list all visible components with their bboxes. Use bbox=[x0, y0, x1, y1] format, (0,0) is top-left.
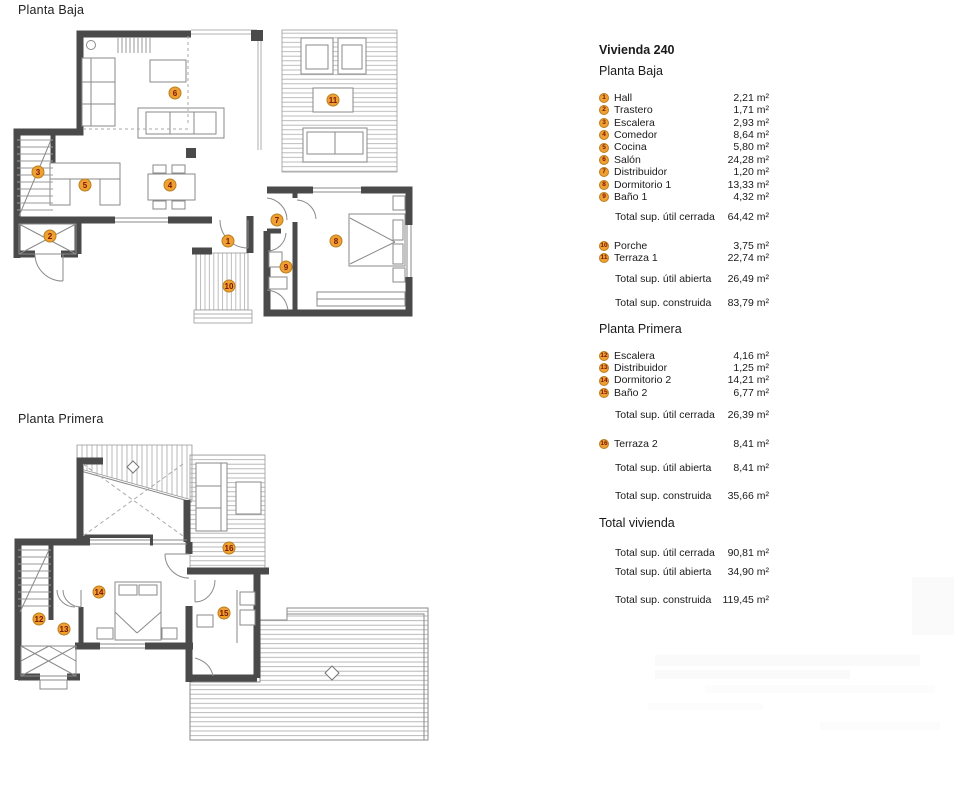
svg-text:8: 8 bbox=[334, 237, 339, 246]
room-area: 1,71 m² bbox=[733, 104, 769, 116]
badge-bano-2: 15 bbox=[218, 607, 230, 619]
room-label: Escalera bbox=[614, 117, 733, 129]
room-area: 13,33 m² bbox=[728, 179, 769, 191]
total-row: Total sup. construida83,79 m² bbox=[599, 297, 769, 309]
sloped-roof-hatch bbox=[77, 445, 192, 502]
room-area: 5,80 m² bbox=[733, 141, 769, 153]
room-number-badge: 6 bbox=[599, 155, 609, 165]
total-label: Total sup. útil cerrada bbox=[599, 211, 728, 223]
badge-hall: 1 bbox=[222, 235, 234, 247]
room-area: 8,64 m² bbox=[733, 129, 769, 141]
room-area: 2,93 m² bbox=[733, 117, 769, 129]
roof-overhang bbox=[191, 30, 263, 41]
room-area: 6,77 m² bbox=[733, 387, 769, 399]
total-label: Total sup. útil abierta bbox=[599, 462, 733, 474]
legend-heading-total-vivienda: Total vivienda bbox=[599, 517, 769, 529]
badge-terraza-1: 11 bbox=[327, 94, 339, 106]
total-row: Total sup. útil abierta34,90 m² bbox=[599, 566, 769, 578]
svg-text:9: 9 bbox=[284, 263, 289, 272]
total-row: Total sup. útil cerrada64,42 m² bbox=[599, 211, 769, 223]
svg-text:2: 2 bbox=[48, 232, 53, 241]
legend-title: Vivienda 240 bbox=[599, 44, 769, 56]
total-label: Total sup. construida bbox=[599, 490, 728, 502]
room-label: Hall bbox=[614, 92, 733, 104]
svg-text:3: 3 bbox=[36, 168, 41, 177]
total-row: Total sup. útil cerrada26,39 m² bbox=[599, 409, 769, 421]
room-number-badge: 4 bbox=[599, 130, 609, 140]
planta-baja-title: Planta Baja bbox=[18, 3, 84, 17]
svg-text:7: 7 bbox=[275, 216, 280, 225]
total-value: 83,79 m² bbox=[728, 297, 769, 309]
room-number-badge: 13 bbox=[599, 363, 609, 373]
badge-porche: 10 bbox=[223, 280, 235, 292]
svg-text:14: 14 bbox=[95, 588, 104, 597]
room-label: Baño 2 bbox=[614, 387, 733, 399]
faint-artifact bbox=[820, 722, 940, 730]
legend-row: 2Trastero1,71 m² bbox=[599, 104, 769, 116]
legend-row: 8Dormitorio 113,33 m² bbox=[599, 179, 769, 191]
svg-text:4: 4 bbox=[168, 181, 173, 190]
legend-row: 10Porche3,75 m² bbox=[599, 240, 769, 252]
legend-row: 5Cocina5,80 m² bbox=[599, 141, 769, 153]
total-value: 35,66 m² bbox=[728, 490, 769, 502]
room-area: 2,21 m² bbox=[733, 92, 769, 104]
floorplan-document: { "plans": { "baja_title": "Planta Baja"… bbox=[0, 0, 958, 800]
legend-row: 12Escalera4,16 m² bbox=[599, 350, 769, 362]
room-label: Terraza 1 bbox=[614, 252, 728, 264]
svg-text:12: 12 bbox=[35, 615, 44, 624]
badge-escalera-2: 12 bbox=[33, 613, 45, 625]
room-label: Dormitorio 2 bbox=[614, 374, 728, 386]
svg-text:13: 13 bbox=[60, 625, 69, 634]
total-value: 90,81 m² bbox=[728, 547, 769, 559]
room-label: Escalera bbox=[614, 350, 733, 362]
room-label: Baño 1 bbox=[614, 191, 733, 203]
svg-text:1: 1 bbox=[226, 237, 231, 246]
room-area: 3,75 m² bbox=[733, 240, 769, 252]
legend-heading-planta-baja: Planta Baja bbox=[599, 65, 769, 77]
room-number-badge: 12 bbox=[599, 351, 609, 361]
room-area: 8,41 m² bbox=[733, 438, 769, 450]
svg-text:6: 6 bbox=[173, 89, 178, 98]
windows bbox=[40, 538, 187, 689]
total-value: 34,90 m² bbox=[728, 566, 769, 578]
legend-row: 1Hall2,21 m² bbox=[599, 92, 769, 104]
svg-text:16: 16 bbox=[225, 544, 234, 553]
room-label: Distribuidor bbox=[614, 362, 733, 374]
total-label: Total sup. útil abierta bbox=[599, 273, 728, 285]
room-number-badge: 8 bbox=[599, 180, 609, 190]
svg-text:10: 10 bbox=[225, 282, 234, 291]
svg-text:11: 11 bbox=[329, 96, 338, 105]
legend-row: 15Baño 26,77 m² bbox=[599, 387, 769, 399]
faint-artifact bbox=[655, 655, 920, 666]
lower-roof-hatch bbox=[190, 608, 428, 740]
legend-row: 3Escalera2,93 m² bbox=[599, 117, 769, 129]
faint-artifact bbox=[655, 670, 850, 679]
badge-distribuidor-1: 7 bbox=[271, 214, 283, 226]
total-row: Total sup. útil cerrada90,81 m² bbox=[599, 547, 769, 559]
room-area: 4,32 m² bbox=[733, 191, 769, 203]
room-label: Terraza 2 bbox=[614, 438, 733, 450]
area-legend: Vivienda 240 Planta Baja 1Hall2,21 m² 2T… bbox=[599, 44, 769, 606]
room-area: 24,28 m² bbox=[728, 154, 769, 166]
badge-cocina: 5 bbox=[79, 179, 91, 191]
total-row: Total sup. útil abierta8,41 m² bbox=[599, 462, 769, 474]
badge-distribuidor-2: 13 bbox=[58, 623, 70, 635]
room-number-badge: 11 bbox=[599, 253, 609, 263]
room-number-badge: 9 bbox=[599, 192, 609, 202]
legend-row: 14Dormitorio 214,21 m² bbox=[599, 374, 769, 386]
faint-artifact bbox=[648, 703, 763, 710]
total-value: 64,42 m² bbox=[728, 211, 769, 223]
total-label: Total sup. útil cerrada bbox=[599, 409, 728, 421]
total-row: Total sup. útil abierta26,49 m² bbox=[599, 273, 769, 285]
total-value: 119,45 m² bbox=[723, 594, 770, 606]
room-number-badge: 1 bbox=[599, 93, 609, 103]
floorplan-planta-primera: 12 13 14 15 16 bbox=[5, 430, 455, 750]
legend-row: 9Baño 14,32 m² bbox=[599, 191, 769, 203]
room-number-badge: 16 bbox=[599, 439, 609, 449]
legend-row: 7Distribuidor1,20 m² bbox=[599, 166, 769, 178]
svg-text:5: 5 bbox=[83, 181, 88, 190]
room-number-badge: 14 bbox=[599, 376, 609, 386]
room-number-badge: 10 bbox=[599, 241, 609, 251]
room-area: 22,74 m² bbox=[728, 252, 769, 264]
badge-bano-1: 9 bbox=[280, 261, 292, 273]
room-number-badge: 7 bbox=[599, 167, 609, 177]
room-label: Distribuidor bbox=[614, 166, 733, 178]
room-label: Salón bbox=[614, 154, 728, 166]
room-area: 4,16 m² bbox=[733, 350, 769, 362]
room-area: 1,20 m² bbox=[733, 166, 769, 178]
planta-primera-title: Planta Primera bbox=[18, 412, 103, 426]
legend-row: 16Terraza 28,41 m² bbox=[599, 438, 769, 450]
room-number-badge: 15 bbox=[599, 388, 609, 398]
legend-row: 6Salón24,28 m² bbox=[599, 154, 769, 166]
floorplan-planta-baja: 1 2 3 4 5 6 7 8 9 10 11 bbox=[5, 22, 455, 342]
badge-comedor: 4 bbox=[164, 179, 176, 191]
legend-row: 11Terraza 122,74 m² bbox=[599, 252, 769, 264]
total-value: 8,41 m² bbox=[733, 462, 769, 474]
total-label: Total sup. útil abierta bbox=[599, 566, 728, 578]
faint-artifact bbox=[705, 685, 935, 693]
badge-trastero: 2 bbox=[44, 230, 56, 242]
total-row: Total sup. construida119,45 m² bbox=[599, 594, 769, 606]
badge-terraza-2: 16 bbox=[223, 542, 235, 554]
room-number-badge: 3 bbox=[599, 118, 609, 128]
badge-dormitorio-2: 14 bbox=[93, 586, 105, 598]
room-label: Dormitorio 1 bbox=[614, 179, 728, 191]
total-label: Total sup. útil cerrada bbox=[599, 547, 728, 559]
room-label: Comedor bbox=[614, 129, 733, 141]
total-value: 26,49 m² bbox=[728, 273, 769, 285]
legend-heading-planta-primera: Planta Primera bbox=[599, 323, 769, 335]
legend-row: 4Comedor8,64 m² bbox=[599, 129, 769, 141]
total-row: Total sup. construida35,66 m² bbox=[599, 490, 769, 502]
total-label: Total sup. construida bbox=[599, 594, 723, 606]
room-label: Trastero bbox=[614, 104, 733, 116]
room-area: 1,25 m² bbox=[733, 362, 769, 374]
faint-artifact bbox=[912, 577, 954, 635]
room-number-badge: 2 bbox=[599, 105, 609, 115]
room-label: Porche bbox=[614, 240, 733, 252]
badge-salon: 6 bbox=[169, 87, 181, 99]
badge-dormitorio-1: 8 bbox=[330, 235, 342, 247]
total-label: Total sup. construida bbox=[599, 297, 728, 309]
total-value: 26,39 m² bbox=[728, 409, 769, 421]
room-area: 14,21 m² bbox=[728, 374, 769, 386]
badge-escalera: 3 bbox=[32, 166, 44, 178]
svg-text:15: 15 bbox=[220, 609, 229, 618]
legend-row: 13Distribuidor1,25 m² bbox=[599, 362, 769, 374]
room-label: Cocina bbox=[614, 141, 733, 153]
room-number-badge: 5 bbox=[599, 143, 609, 153]
